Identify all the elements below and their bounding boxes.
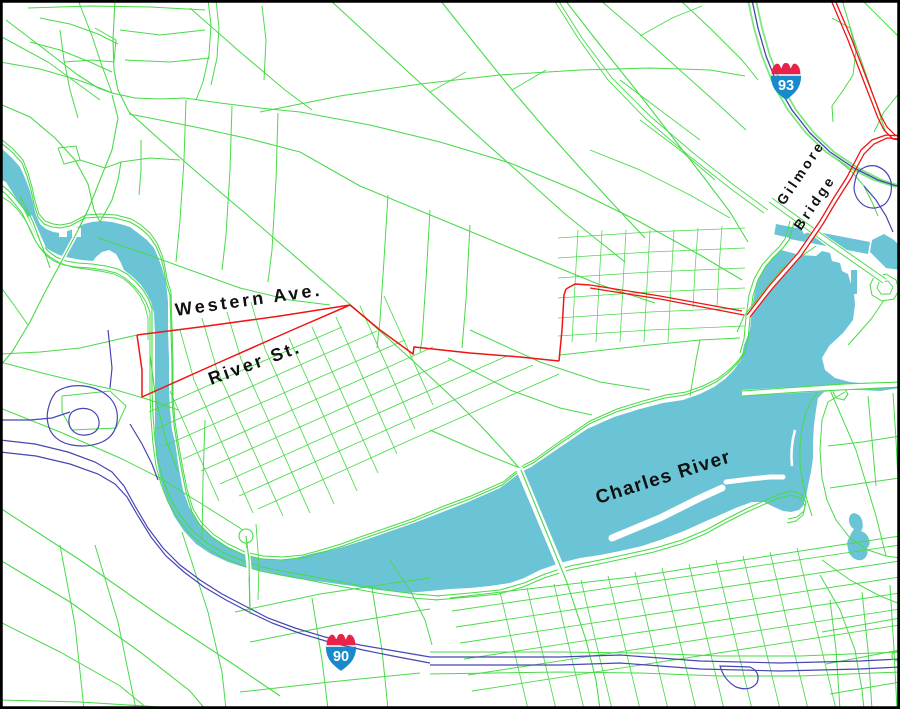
svg-text:93: 93 (778, 78, 794, 94)
svg-text:90: 90 (333, 649, 349, 665)
